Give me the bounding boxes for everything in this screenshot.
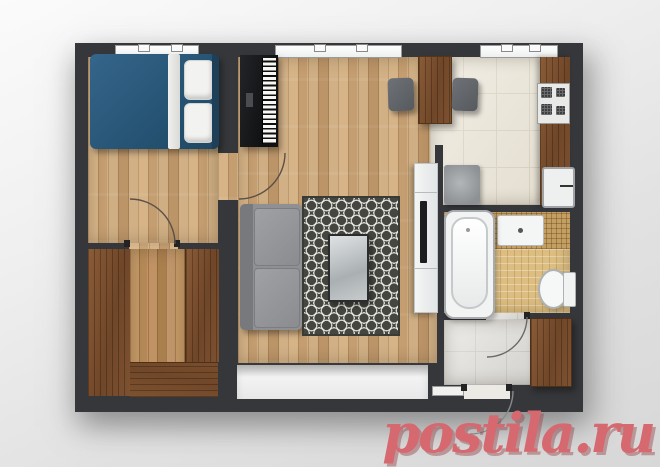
door-swing-arcs [0,0,660,467]
watermark-logo: postila.ru [382,401,654,465]
screenshot-stage: postila.ru [0,0,660,467]
